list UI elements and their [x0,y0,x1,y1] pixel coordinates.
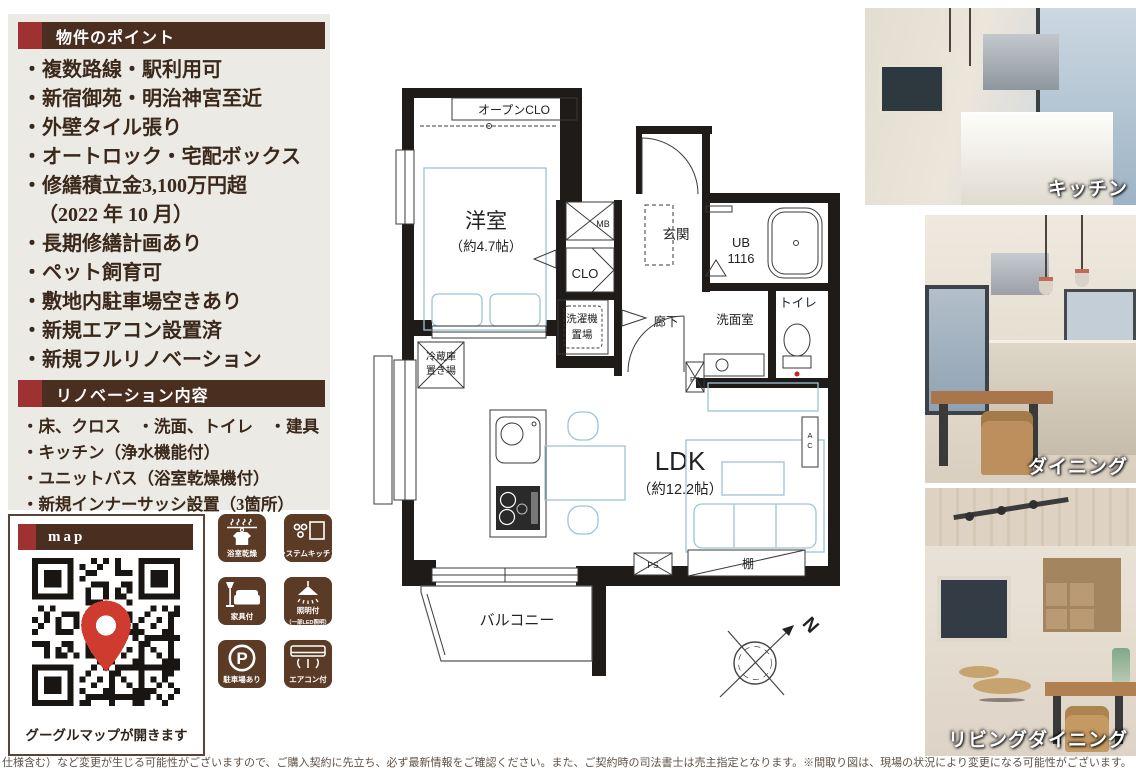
closet-label: CLO [572,266,599,281]
photo-round-table [973,678,1031,694]
photo-living-dining: リビングダイニング [925,488,1136,756]
list-item: ・床、クロス ・洗面、トイレ ・建具 [22,414,326,440]
qr-code-image [32,558,180,706]
feature-label: 照明付 [297,605,320,616]
photo-caption: キッチン [1048,174,1128,201]
bedroom-size-label: （約4.7帖） [450,239,523,254]
list-item: ・新宿御苑・明治神宮至近 [22,85,326,114]
floor-plan: オープンCLO 洋室 （約4.7帖） MB CLO 玄関 UB 1116 [356,78,856,703]
google-maps-qr-code [32,558,180,706]
shelf-label: 棚 [742,556,754,571]
list-item: ・ペット飼育可 [22,259,326,288]
bedroom-label: 洋室 [465,210,507,233]
photo-flower-vase [1112,648,1130,682]
washer-label: 置場 [572,328,593,341]
photo-window [937,576,1011,642]
photo-pendant-shade [1075,269,1089,287]
photo-spotlight [1029,500,1038,509]
red-accent-square [18,22,42,49]
ldk-size-label: （約12.2帖） [637,481,723,498]
disclaimer-text: 仕様含む）など変更が生じる可能性がございますので、ご購入契約に先立ち、必ず最新情… [2,754,1136,768]
photo-table-leg [939,404,948,466]
unit-bath-label: UB [732,235,750,250]
ldk-label: LDK [655,446,706,476]
list-item: ・複数路線・駅利用可 [22,56,326,85]
photo-pendant-shade [1039,277,1053,295]
list-item: （2022 年 10 月） [22,201,326,230]
list-item: ・敷地内駐車場空きあり [22,288,326,317]
feature-label: 浴室乾燥 [227,548,257,559]
map-header-bar: map [18,524,193,550]
feature-sublabel: （一部LED照明） [286,618,330,626]
feature-tile-parking: P 駐車場あり [218,640,266,688]
points-header-bar: 物件のポイント [18,22,325,49]
unit-bath-size-label: 1116 [728,251,755,266]
photo-window [879,64,945,114]
list-item: ・修繕積立金3,100万円超 [22,172,326,201]
feature-tile-bathroom-dryer: 浴室乾燥 [218,514,266,562]
feature-label: エアコン付 [289,674,327,685]
map-caption: グーグルマップが開きます [10,724,203,744]
parking-icon: P [226,644,258,674]
photo-pendant-light [1045,215,1047,279]
renovation-header-bar: リノベーション内容 [18,380,325,407]
feature-label: 駐車場あり [223,674,261,685]
photo-kitchen: キッチン [865,8,1136,205]
map-header-title: map [36,529,85,546]
list-item: ・オートロック・宅配ボックス [22,143,326,172]
list-item: ・ユニットバス（浴室乾燥機付） [22,466,326,492]
photo-chair [981,411,1033,475]
map-section: map グーグルマップが開きます [8,514,205,756]
entrance-label: 玄関 [663,226,690,242]
open-closet-label: オープンCLO [478,103,550,117]
list-item: ・新規エアコン設置済 [22,317,326,346]
photo-spotlight [965,512,974,521]
points-list: ・複数路線・駅利用可 ・新宿御苑・明治神宮至近 ・外壁タイル張り ・オートロック… [22,56,326,375]
feature-label: システムキッチン [278,548,338,559]
meter-box-label: MB [596,219,610,229]
bathroom-dryer-icon [224,518,260,546]
photo-caption: リビングダイニング [948,725,1128,752]
photo-dining-table [931,391,1053,404]
photo-pendant-light [1081,215,1083,271]
washer-label: 洗濯機 [566,312,598,325]
feature-tile-aircon: エアコン付 [284,640,332,688]
photo-caption: ダイニング [1028,452,1128,479]
photo-pendant-light [969,8,971,66]
fridge-label: 冷蔵庫 [426,350,456,363]
ac-label: C [807,441,813,450]
photo-round-table [959,666,999,678]
list-item: ・外壁タイル張り [22,114,326,143]
svg-text:PS: PS [647,560,659,570]
svg-text:P: P [236,649,247,668]
aircon-icon [289,644,327,672]
renovation-list: ・床、クロス ・洗面、トイレ ・建具 ・キッチン（浄水機能付） ・ユニットバス（… [22,414,326,518]
renovation-header-title: リノベーション内容 [42,382,209,406]
pipe-space: PS [634,553,672,575]
list-item: ・キッチン（浄水機能付） [22,440,326,466]
photo-shelf-unit [1043,558,1121,632]
washroom-label: 洗面室 [716,312,754,327]
feature-tile-lighting: 照明付 （一部LED照明） [284,577,332,625]
photo-dining: ダイニング [925,215,1136,483]
system-kitchen-icon [289,518,327,544]
balcony-label: バルコニー [480,612,555,629]
ac-label: A [807,431,812,440]
points-header-title: 物件のポイント [42,24,175,48]
lighting-icon [290,581,326,607]
fridge-label: 置き場 [426,364,456,377]
furniture-icon [223,581,261,609]
photo-pendant-light [949,8,951,52]
feature-tile-system-kitchen: システムキッチン [284,514,332,562]
list-item: ・新規フルリノベーション [22,346,326,375]
red-accent-square [18,380,42,407]
photo-range-hood [983,34,1059,90]
svg-text:PS: PS [690,375,700,384]
property-points-panel: 物件のポイント ・複数路線・駅利用可 ・新宿御苑・明治神宮至近 ・外壁タイル張り… [8,14,330,510]
photo-dining-table [1045,682,1136,696]
property-flyer: 物件のポイント ・複数路線・駅利用可 ・新宿御苑・明治神宮至近 ・外壁タイル張り… [0,0,1136,768]
photo-spotlight [997,506,1006,515]
red-accent-square [18,524,36,550]
feature-tile-furniture: 家具付 [218,577,266,625]
toilet-label: トイレ [779,296,817,310]
feature-label: 家具付 [231,611,254,622]
list-item: ・長期修繕計画あり [22,230,326,259]
